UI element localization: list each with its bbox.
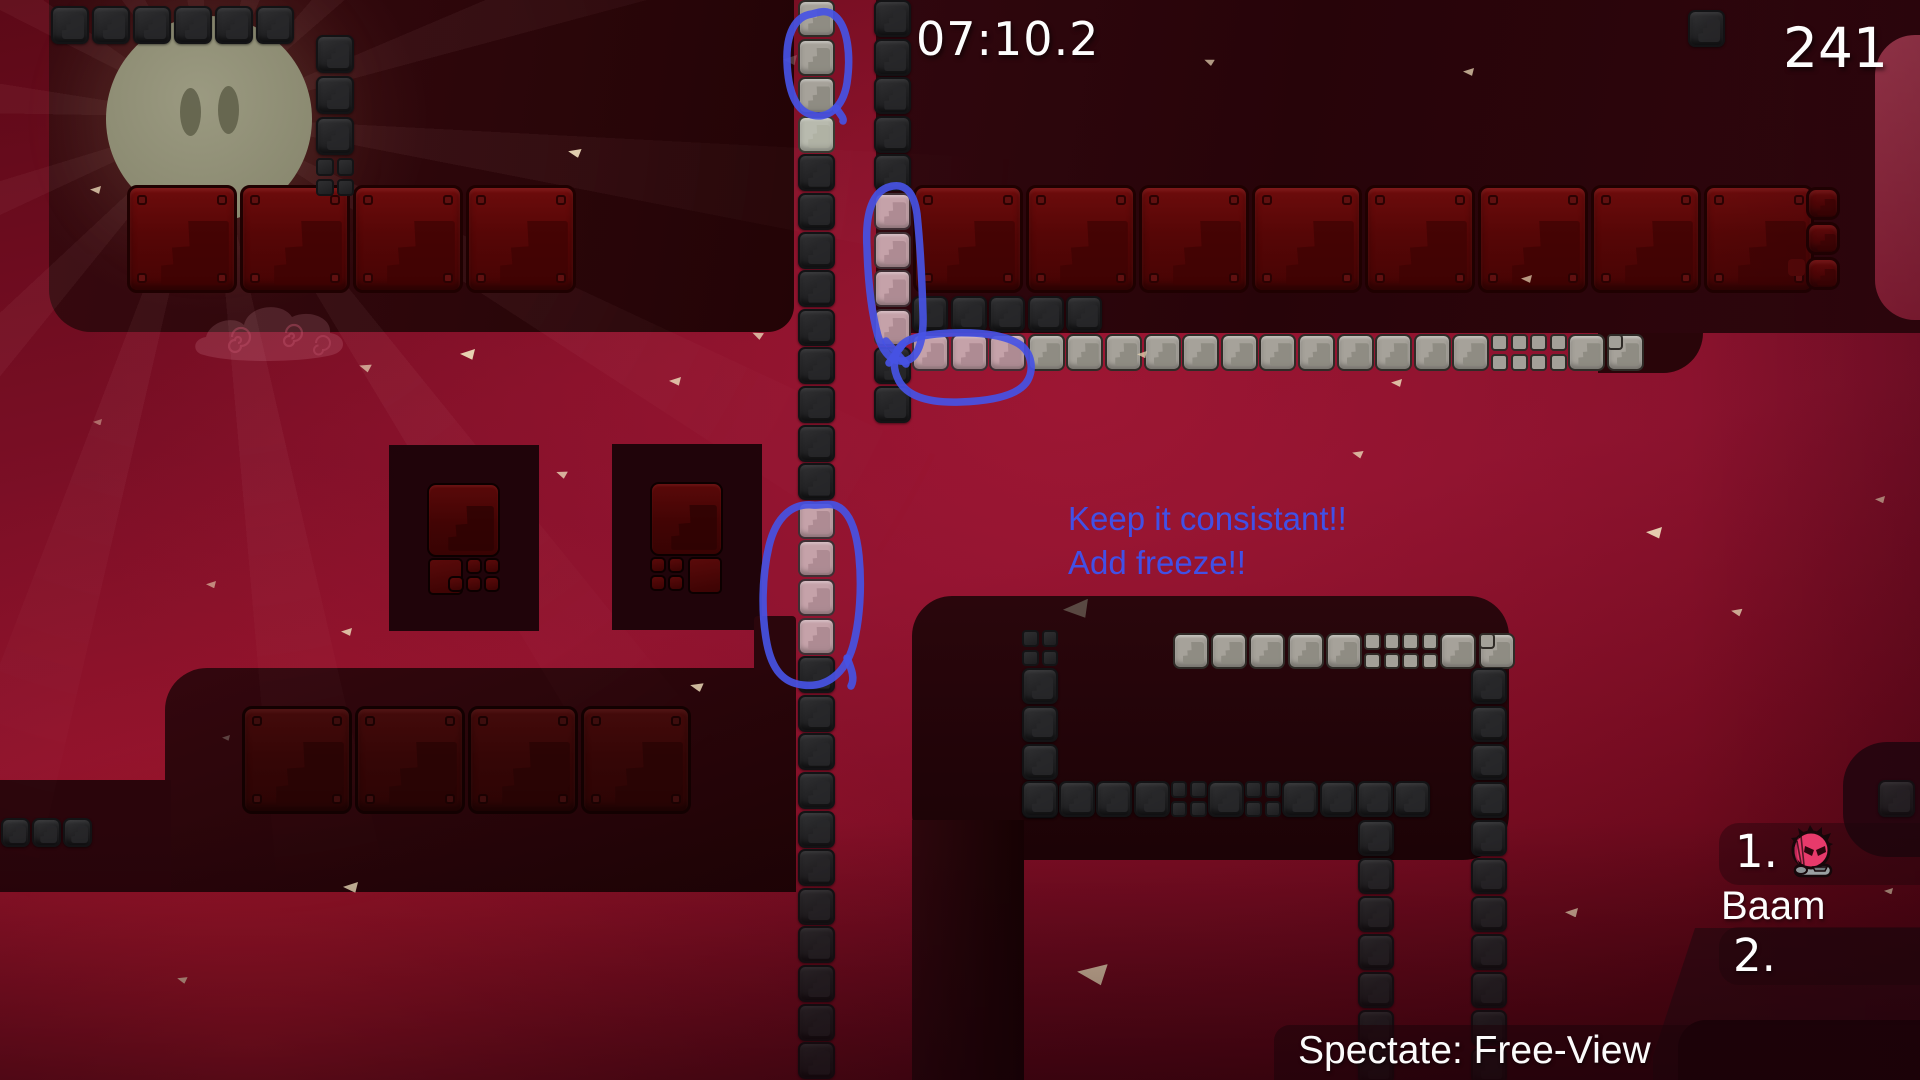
tile-texture — [808, 1013, 830, 1036]
tile-texture — [808, 472, 830, 495]
tile — [874, 270, 911, 307]
tile-texture — [808, 743, 830, 766]
brick-bolt — [443, 273, 453, 283]
tile-texture — [1069, 790, 1090, 812]
brick — [1806, 187, 1840, 220]
tile — [32, 818, 61, 847]
tile — [1471, 934, 1507, 970]
tile-texture — [1481, 715, 1502, 737]
tile — [798, 425, 835, 462]
brick — [1478, 185, 1588, 293]
tile-texture — [1144, 790, 1165, 812]
race-timer: 07:10.2 — [916, 12, 1099, 66]
tile-texture — [1481, 905, 1502, 927]
tile — [874, 386, 911, 423]
brick-bolt — [330, 273, 340, 283]
mini-tile — [1364, 633, 1381, 650]
tile — [1096, 781, 1132, 817]
door-brick — [650, 482, 723, 556]
mini-tile — [1511, 334, 1528, 351]
tile — [798, 386, 835, 423]
brick-bolt — [1455, 195, 1465, 205]
brick — [355, 706, 465, 814]
tile-texture — [1032, 677, 1053, 699]
tile — [1440, 633, 1476, 669]
tile — [874, 77, 911, 114]
brick-texture — [448, 506, 494, 551]
tile-texture — [884, 164, 906, 187]
tile-texture — [62, 15, 85, 39]
tile — [1471, 668, 1507, 704]
mini-tile — [1402, 653, 1419, 670]
mini-tile — [1022, 630, 1039, 647]
tile-texture — [808, 125, 830, 148]
brick-bolt — [478, 794, 488, 804]
tile-texture — [808, 202, 830, 225]
tile-texture — [1192, 343, 1214, 366]
tile-texture — [1481, 981, 1502, 1003]
mini-tile — [1022, 650, 1039, 667]
brick-bolt — [558, 716, 568, 726]
mini-tile — [1422, 653, 1439, 670]
door-small-tile — [688, 557, 722, 594]
tile-texture — [327, 85, 350, 109]
brick-bolt — [137, 195, 147, 205]
tile — [1022, 668, 1058, 704]
pink-creature-icon — [1787, 823, 1837, 881]
spectate-label: Spectate: Free-View — [1298, 1029, 1651, 1073]
tile — [256, 6, 294, 44]
tile-texture — [1076, 305, 1097, 327]
tile — [798, 502, 835, 539]
tile-texture — [1154, 343, 1176, 366]
brick-bolt — [1601, 195, 1611, 205]
brick-bolt — [671, 716, 681, 726]
tile — [1059, 781, 1095, 817]
tile-texture — [808, 511, 830, 534]
brick-bolt — [217, 195, 227, 205]
brick-bolt — [365, 794, 375, 804]
tile — [316, 117, 354, 155]
tile — [1357, 781, 1393, 817]
brick-bolt — [1149, 195, 1159, 205]
tile — [1173, 633, 1209, 669]
tile-texture — [808, 781, 830, 804]
brick-bolt — [252, 794, 262, 804]
tile — [316, 35, 354, 73]
leaderboard-row-2: 2. — [1719, 927, 1920, 985]
brick-texture — [1817, 269, 1835, 286]
tile — [1066, 334, 1103, 371]
brick-bolt — [217, 273, 227, 283]
brick-bolt — [476, 195, 486, 205]
tile — [174, 6, 212, 44]
tile — [798, 1042, 835, 1079]
tile-texture — [1385, 343, 1407, 366]
door-structure-1 — [389, 445, 539, 631]
game-viewport[interactable]: Keep it consistant!! Add freeze!! 07:10.… — [0, 0, 1920, 1080]
tile-texture — [1481, 943, 1502, 965]
annotation-note-1: Keep it consistant!! — [1068, 500, 1347, 538]
tile-texture — [808, 86, 830, 109]
door-small-tile — [668, 557, 684, 573]
tile-texture — [999, 305, 1020, 327]
tile-texture — [922, 343, 944, 366]
tile-texture — [1450, 642, 1471, 664]
brick-bolt — [1229, 195, 1239, 205]
tile — [874, 0, 911, 37]
tile-texture — [1368, 829, 1389, 851]
tile — [1144, 334, 1181, 371]
tile-texture — [961, 343, 983, 366]
tile-texture — [808, 434, 830, 457]
tile — [912, 334, 949, 371]
tile — [798, 656, 835, 693]
tile — [798, 733, 835, 770]
tile-texture — [884, 318, 906, 341]
brick — [1591, 185, 1701, 293]
tile — [92, 6, 130, 44]
tile — [215, 6, 253, 44]
tile-texture — [1367, 790, 1388, 812]
tile-texture — [1424, 343, 1446, 366]
brick-bolt — [1488, 273, 1498, 283]
mini-tile — [1190, 801, 1207, 818]
tile — [874, 347, 911, 384]
tile — [1, 818, 30, 847]
brick-bolt — [443, 195, 453, 205]
brick-bolt — [365, 716, 375, 726]
tile — [1471, 896, 1507, 932]
tile — [1105, 334, 1142, 371]
tile — [1688, 10, 1725, 47]
dust-particle — [1646, 527, 1662, 539]
tile-texture — [884, 9, 906, 32]
moon-eye-right — [218, 86, 239, 134]
tile — [1471, 972, 1507, 1008]
tile — [1394, 781, 1430, 817]
brick — [240, 185, 350, 293]
brick-bolt — [1342, 273, 1352, 283]
moon-eye-left — [180, 88, 201, 136]
brick — [1704, 185, 1814, 293]
leaderboard-rank-2: 2. — [1733, 929, 1776, 982]
dust-particle — [1351, 449, 1363, 459]
mini-tile — [1530, 334, 1547, 351]
tile-texture — [808, 1051, 830, 1074]
brick-texture — [671, 505, 717, 550]
spectate-bar[interactable]: Spectate: Free-View — [1274, 1025, 1920, 1080]
tile — [1452, 334, 1489, 371]
tile-texture — [808, 241, 830, 264]
brick-bolt — [1036, 273, 1046, 283]
score-counter: 241 — [1783, 16, 1888, 80]
mini-tile — [1607, 334, 1623, 350]
brick — [1139, 185, 1249, 293]
tile — [1134, 781, 1170, 817]
tile-texture — [1298, 642, 1319, 664]
leaderboard-name-1: Baam — [1721, 884, 1826, 929]
mini-tile — [1384, 633, 1401, 650]
tile-texture — [327, 126, 350, 150]
tile — [1249, 633, 1285, 669]
brick-bolt — [1681, 273, 1691, 283]
brick-bolt — [1488, 195, 1498, 205]
tile — [1022, 706, 1058, 742]
tile — [1414, 334, 1451, 371]
tile — [951, 334, 988, 371]
tile-texture — [1221, 642, 1242, 664]
tile-texture — [1404, 790, 1425, 812]
ink-circle-top-tail — [836, 108, 843, 121]
brick-bolt — [250, 195, 260, 205]
tile — [874, 154, 911, 191]
brick-bolt — [1568, 273, 1578, 283]
tile-texture — [1481, 867, 1502, 889]
dust-particle — [176, 975, 187, 984]
brick-bolt — [1714, 273, 1724, 283]
tile-texture — [40, 826, 57, 844]
tile — [989, 334, 1026, 371]
tile — [798, 811, 835, 848]
tile — [1471, 782, 1507, 818]
tile — [798, 39, 835, 76]
brick-bolt — [1116, 273, 1126, 283]
tile — [798, 116, 835, 153]
tile — [798, 695, 835, 732]
brick — [466, 185, 576, 293]
brick-texture — [1817, 234, 1835, 251]
tile-texture — [71, 826, 88, 844]
tile — [1337, 334, 1374, 371]
tile-texture — [808, 820, 830, 843]
brick-bolt — [476, 273, 486, 283]
dust-particle — [1875, 496, 1885, 503]
brick-bolt — [1375, 195, 1385, 205]
tile — [1878, 780, 1915, 817]
leaderboard-rank-1: 1. — [1735, 825, 1778, 878]
tile — [798, 463, 835, 500]
tile-texture — [999, 343, 1021, 366]
leaderboard-row-1: 1. — [1719, 823, 1920, 885]
mini-tile — [337, 158, 355, 176]
mini-tile — [1171, 801, 1188, 818]
tile-texture — [1368, 943, 1389, 965]
tile — [1282, 781, 1318, 817]
mini-tile — [1384, 653, 1401, 670]
tile-texture — [1032, 753, 1053, 775]
tile-texture — [808, 858, 830, 881]
tile — [912, 296, 948, 332]
tile — [1298, 334, 1335, 371]
tile — [1568, 334, 1605, 371]
door-brick — [427, 483, 500, 557]
tile — [1471, 744, 1507, 780]
mini-tile — [1042, 650, 1059, 667]
brick — [127, 185, 237, 293]
tile-texture — [1463, 343, 1485, 366]
tile-texture — [1183, 642, 1204, 664]
brick-bolt — [1568, 195, 1578, 205]
tile — [798, 193, 835, 230]
tile — [63, 818, 92, 847]
tile — [1028, 334, 1065, 371]
tile-texture — [1481, 829, 1502, 851]
tile-texture — [808, 974, 830, 997]
tile-texture — [808, 665, 830, 688]
tile — [798, 270, 835, 307]
tile — [1358, 896, 1394, 932]
tile-texture — [808, 936, 830, 959]
tile — [798, 772, 835, 809]
brick-bolt — [1003, 273, 1013, 283]
tile — [1320, 781, 1356, 817]
tile — [798, 926, 835, 963]
mini-tile — [1511, 354, 1528, 371]
tile-texture — [267, 15, 290, 39]
mini-tile — [316, 179, 334, 197]
brick-bolt — [1681, 195, 1691, 205]
tile-texture — [884, 241, 906, 264]
mini-tile — [1245, 781, 1262, 798]
tile-texture — [808, 550, 830, 573]
mini-tile — [1550, 354, 1567, 371]
tile — [798, 849, 835, 886]
brick-bolt — [137, 273, 147, 283]
mini-tile — [1190, 781, 1207, 798]
tile-texture — [922, 305, 943, 327]
tile-texture — [884, 202, 906, 225]
tile-texture — [961, 305, 982, 327]
tile-texture — [1330, 790, 1351, 812]
brick-bolt — [250, 273, 260, 283]
tile — [874, 309, 911, 346]
dust-particle — [93, 419, 102, 425]
brick-bolt — [591, 794, 601, 804]
mini-tile — [1491, 334, 1508, 351]
tile-texture — [1336, 642, 1357, 664]
tile — [316, 76, 354, 114]
tile — [798, 618, 835, 655]
dust-particle — [358, 362, 372, 373]
dust-particle — [1565, 908, 1578, 917]
brick-bolt — [1262, 195, 1272, 205]
tile-texture — [808, 164, 830, 187]
dust-particle — [341, 628, 352, 636]
tile-texture — [327, 44, 350, 68]
tile-texture — [808, 588, 830, 611]
dust-particle — [1076, 962, 1107, 986]
brick-bolt — [1003, 195, 1013, 205]
tile-texture — [1368, 905, 1389, 927]
tile — [133, 6, 171, 44]
brick-bolt — [1342, 195, 1352, 205]
tile — [798, 154, 835, 191]
tile — [1259, 334, 1296, 371]
tile-texture — [884, 357, 906, 380]
brick-bolt — [923, 195, 933, 205]
tile-texture — [226, 15, 249, 39]
tile-texture — [808, 357, 830, 380]
brick — [1252, 185, 1362, 293]
tile-texture — [1578, 343, 1600, 366]
dust-particle — [669, 377, 681, 386]
tile-texture — [808, 279, 830, 302]
brick-bolt — [363, 273, 373, 283]
tile — [1022, 781, 1058, 817]
tile — [798, 965, 835, 1002]
tile — [951, 296, 987, 332]
tile — [874, 116, 911, 153]
tile — [1375, 334, 1412, 371]
brick — [468, 706, 578, 814]
dust-particle — [1731, 607, 1743, 616]
tile — [798, 347, 835, 384]
tile-texture — [1032, 790, 1053, 812]
tile — [798, 540, 835, 577]
dust-particle — [555, 469, 568, 480]
tile-texture — [1308, 343, 1330, 366]
tile — [1211, 633, 1247, 669]
tile — [798, 579, 835, 616]
tile — [51, 6, 89, 44]
brick-bolt — [1149, 273, 1159, 283]
brick-bolt — [1455, 273, 1465, 283]
mini-tile — [1530, 354, 1547, 371]
mini-tile — [1042, 630, 1059, 647]
tile-texture — [808, 318, 830, 341]
brick-bolt — [330, 195, 340, 205]
mini-tile — [1402, 633, 1419, 650]
brick-bolt — [1262, 273, 1272, 283]
dust-particle — [1884, 888, 1893, 894]
tile-texture — [1077, 343, 1099, 366]
tile — [874, 39, 911, 76]
slab-bottom-mid-arm — [912, 820, 1024, 1080]
tile-texture — [144, 15, 167, 39]
tile-texture — [1292, 790, 1313, 812]
brick — [242, 706, 352, 814]
brick-bolt — [556, 195, 566, 205]
tile — [1471, 706, 1507, 742]
ink-circle-mid-tail — [847, 658, 853, 686]
mini-tile — [1550, 334, 1567, 351]
brick-bolt — [363, 195, 373, 205]
dust-particle — [1391, 379, 1402, 387]
tile-texture — [808, 897, 830, 920]
brick — [913, 185, 1023, 293]
tile-texture — [808, 395, 830, 418]
tile — [1066, 296, 1102, 332]
door-small-tile — [650, 575, 666, 591]
tile — [1326, 633, 1362, 669]
brick-bolt — [1375, 273, 1385, 283]
tile — [1358, 820, 1394, 856]
tile-texture — [884, 395, 906, 418]
tile-texture — [1888, 789, 1910, 812]
door-small-tile — [448, 576, 464, 592]
brick-bolt — [558, 794, 568, 804]
tile-texture — [808, 704, 830, 727]
tile — [1358, 934, 1394, 970]
brick-bolt — [556, 273, 566, 283]
brick-bolt — [591, 716, 601, 726]
brick-bolt — [1229, 273, 1239, 283]
tile-texture — [1032, 715, 1053, 737]
brick-bolt — [1116, 195, 1126, 205]
brick-bolt — [1714, 195, 1724, 205]
tile-texture — [884, 279, 906, 302]
